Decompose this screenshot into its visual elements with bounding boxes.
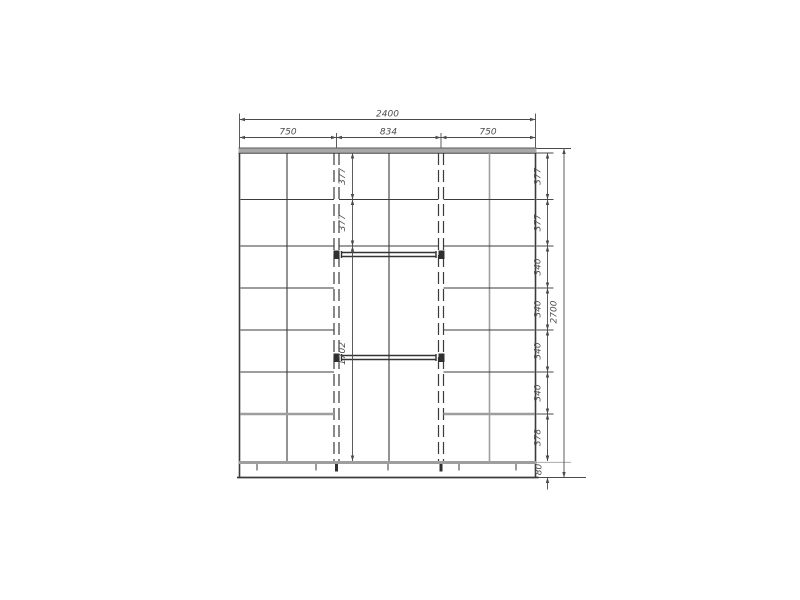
bottom-panel-and-base [237,461,539,478]
dimension-label: 378 [534,429,544,446]
dimension-label: 1702 [338,342,348,365]
dimension-label: 750 [279,128,296,138]
wardrobe-top-panel [239,148,537,153]
wardrobe-front-elevation: 2400750834750377377170237737734034034034… [0,0,800,600]
dimension-label: 340 [534,300,544,317]
dimension-label: 80 [535,464,545,476]
dimension-label: 377 [338,214,348,231]
dimension-label: 834 [380,128,397,138]
dimension-label: 340 [534,258,544,275]
right-section-grid [444,153,535,461]
dimension-section-widths: 750834750 [240,128,536,148]
dimension-base-height: 80 [535,449,587,490]
dimension-label: 2400 [376,110,399,120]
dimension-label: 340 [534,342,544,359]
dimension-label: 377 [534,214,544,231]
wardrobe-technical-drawing-page: 2400750834750377377170237737734034034034… [0,0,800,600]
wardrobe-side-panels [240,153,536,478]
dimension-label: 2700 [550,300,560,323]
dimension-label: 750 [479,128,496,138]
dimension-label: 377 [534,167,544,184]
dimension-label: 340 [534,384,544,401]
left-section-grid [241,153,335,461]
dimension-label: 377 [338,167,348,184]
middle-section [339,153,439,461]
